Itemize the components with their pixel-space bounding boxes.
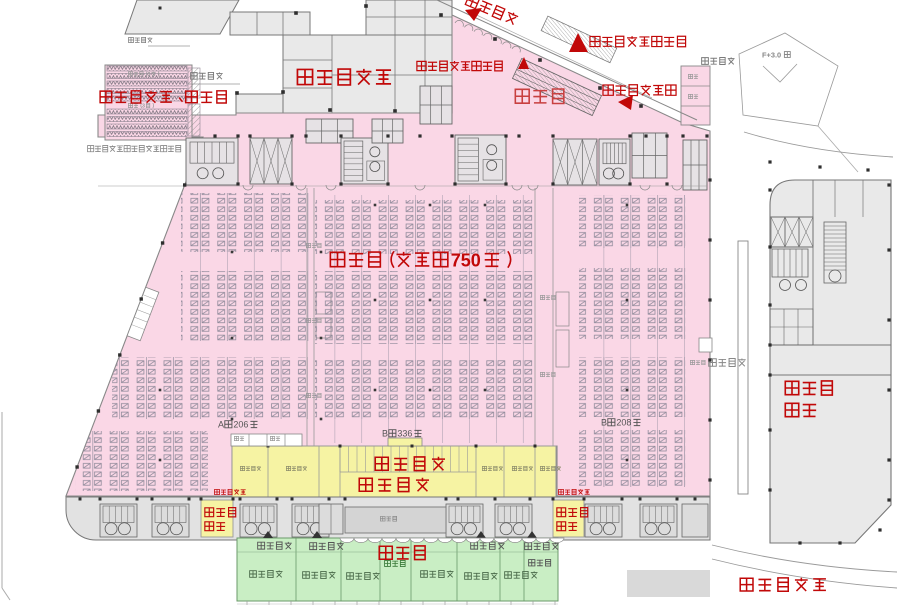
svg-text:750: 750 xyxy=(451,250,481,270)
svg-text:336: 336 xyxy=(397,429,412,439)
svg-text:206: 206 xyxy=(233,420,248,430)
svg-text:B: B xyxy=(601,418,607,428)
svg-text:A: A xyxy=(218,420,224,430)
svg-text:B: B xyxy=(382,429,388,439)
svg-text:3: 3 xyxy=(147,72,150,78)
svg-text:208: 208 xyxy=(616,418,631,428)
svg-text:3: 3 xyxy=(142,104,145,110)
svg-text:F+3.0: F+3.0 xyxy=(762,50,781,59)
